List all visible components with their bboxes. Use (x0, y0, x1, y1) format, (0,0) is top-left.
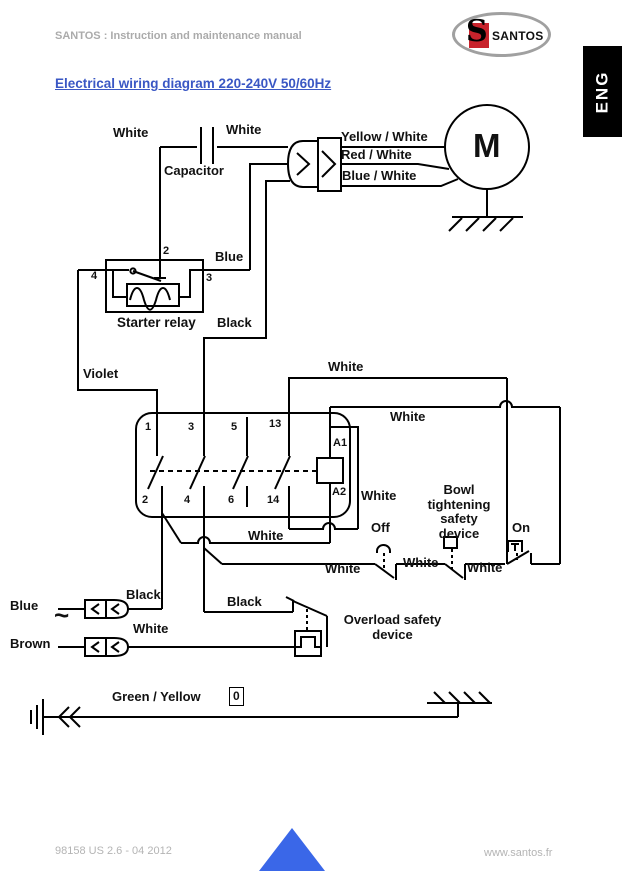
earth-circuit (31, 692, 492, 735)
wire-white-bottom-mid-label: White (403, 556, 438, 571)
wiring-svg (0, 0, 622, 880)
chevron-left-icon (92, 642, 99, 652)
wire-white-cap-left-label: White (113, 126, 148, 141)
wire-blue-white-label: Blue / White (342, 169, 416, 184)
contactor-terminal-13-label: 13 (269, 418, 281, 430)
footer-website: www.santos.fr (484, 847, 552, 859)
wire-white-bottom-right-label: White (467, 561, 502, 576)
off-button-label: Off (371, 521, 390, 536)
motor-m-label: M (473, 128, 501, 165)
motor-connector (288, 138, 341, 191)
contactor-coil (317, 458, 343, 483)
wire-red-white-label: Red / White (341, 148, 412, 163)
on-switch-blade (507, 551, 529, 564)
contactor-terminal-1-label: 1 (145, 421, 151, 433)
earth-ground-icon (31, 699, 43, 735)
bowl-switch-blade (445, 564, 463, 578)
input-blue-label: Blue (10, 599, 38, 614)
manual-page: SANTOS : Instruction and maintenance man… (0, 0, 622, 880)
overload-safety-device-label: Overload safety device (340, 613, 445, 642)
starter-relay-symbol (78, 260, 250, 312)
wire-violet-label: Violet (83, 367, 118, 382)
coil-wires (289, 407, 358, 543)
chevron-left-icon (112, 642, 119, 652)
wire-black-overload-label: Black (227, 595, 262, 610)
contactor-terminal-6-label: 6 (228, 494, 234, 506)
ac-tilde-label: ~ (54, 601, 69, 630)
wire-yellow-white-label: Yellow / White (341, 130, 428, 145)
contactor-terminal-3-label: 3 (188, 421, 194, 433)
coil-terminal-a2-label: A2 (332, 486, 346, 498)
wire-white-brown-row-label: White (133, 622, 168, 637)
wire-white-a2-label: White (361, 489, 396, 504)
chevron-left-icon (112, 604, 119, 614)
relay-terminal-2-label: 2 (163, 245, 169, 257)
input-brown-label: Brown (10, 637, 50, 652)
relay-terminal-3-label: 3 (206, 272, 212, 284)
contactor-block (136, 413, 350, 548)
starter-relay-label: Starter relay (117, 315, 196, 330)
chevron-right-icon (322, 151, 335, 177)
footer-triangle-icon (259, 828, 325, 871)
contactor-terminal-14-label: 14 (267, 494, 279, 506)
chevron-left-icon (92, 604, 99, 614)
wire-black-upper-label: Black (217, 316, 252, 331)
on-button-label: On (512, 521, 530, 536)
ground-zero-label: 0 (229, 687, 244, 706)
blue-wire (250, 164, 288, 270)
coil-terminal-a1-label: A1 (333, 437, 347, 449)
wire-white-a1-label: White (390, 410, 425, 425)
wire-white-bottom-left-label: White (325, 562, 360, 577)
bowl-safety-device-label: Bowl tightening safety device (424, 483, 494, 541)
relay-terminal-4-label: 4 (91, 270, 97, 282)
chevron-right-icon (297, 153, 309, 175)
switch-chain (222, 549, 560, 580)
wire-black-blue-row-label: Black (126, 588, 161, 603)
wire-white-14-label: White (248, 529, 283, 544)
wire-white-cap-right-label: White (226, 123, 261, 138)
capacitor-label: Capacitor (164, 164, 224, 179)
wire-green-yellow-label: Green / Yellow (112, 690, 201, 705)
off-pushbutton-icon (377, 545, 390, 553)
wire-white-13-label: White (328, 360, 363, 375)
contactor-terminal-5-label: 5 (231, 421, 237, 433)
contactor-terminal-2-label: 2 (142, 494, 148, 506)
contactor-terminal-4-label: 4 (184, 494, 190, 506)
footer-doc-ref: 98158 US 2.6 - 04 2012 (55, 845, 172, 857)
motor-symbol (445, 105, 529, 231)
wire-blue-label: Blue (215, 250, 243, 265)
